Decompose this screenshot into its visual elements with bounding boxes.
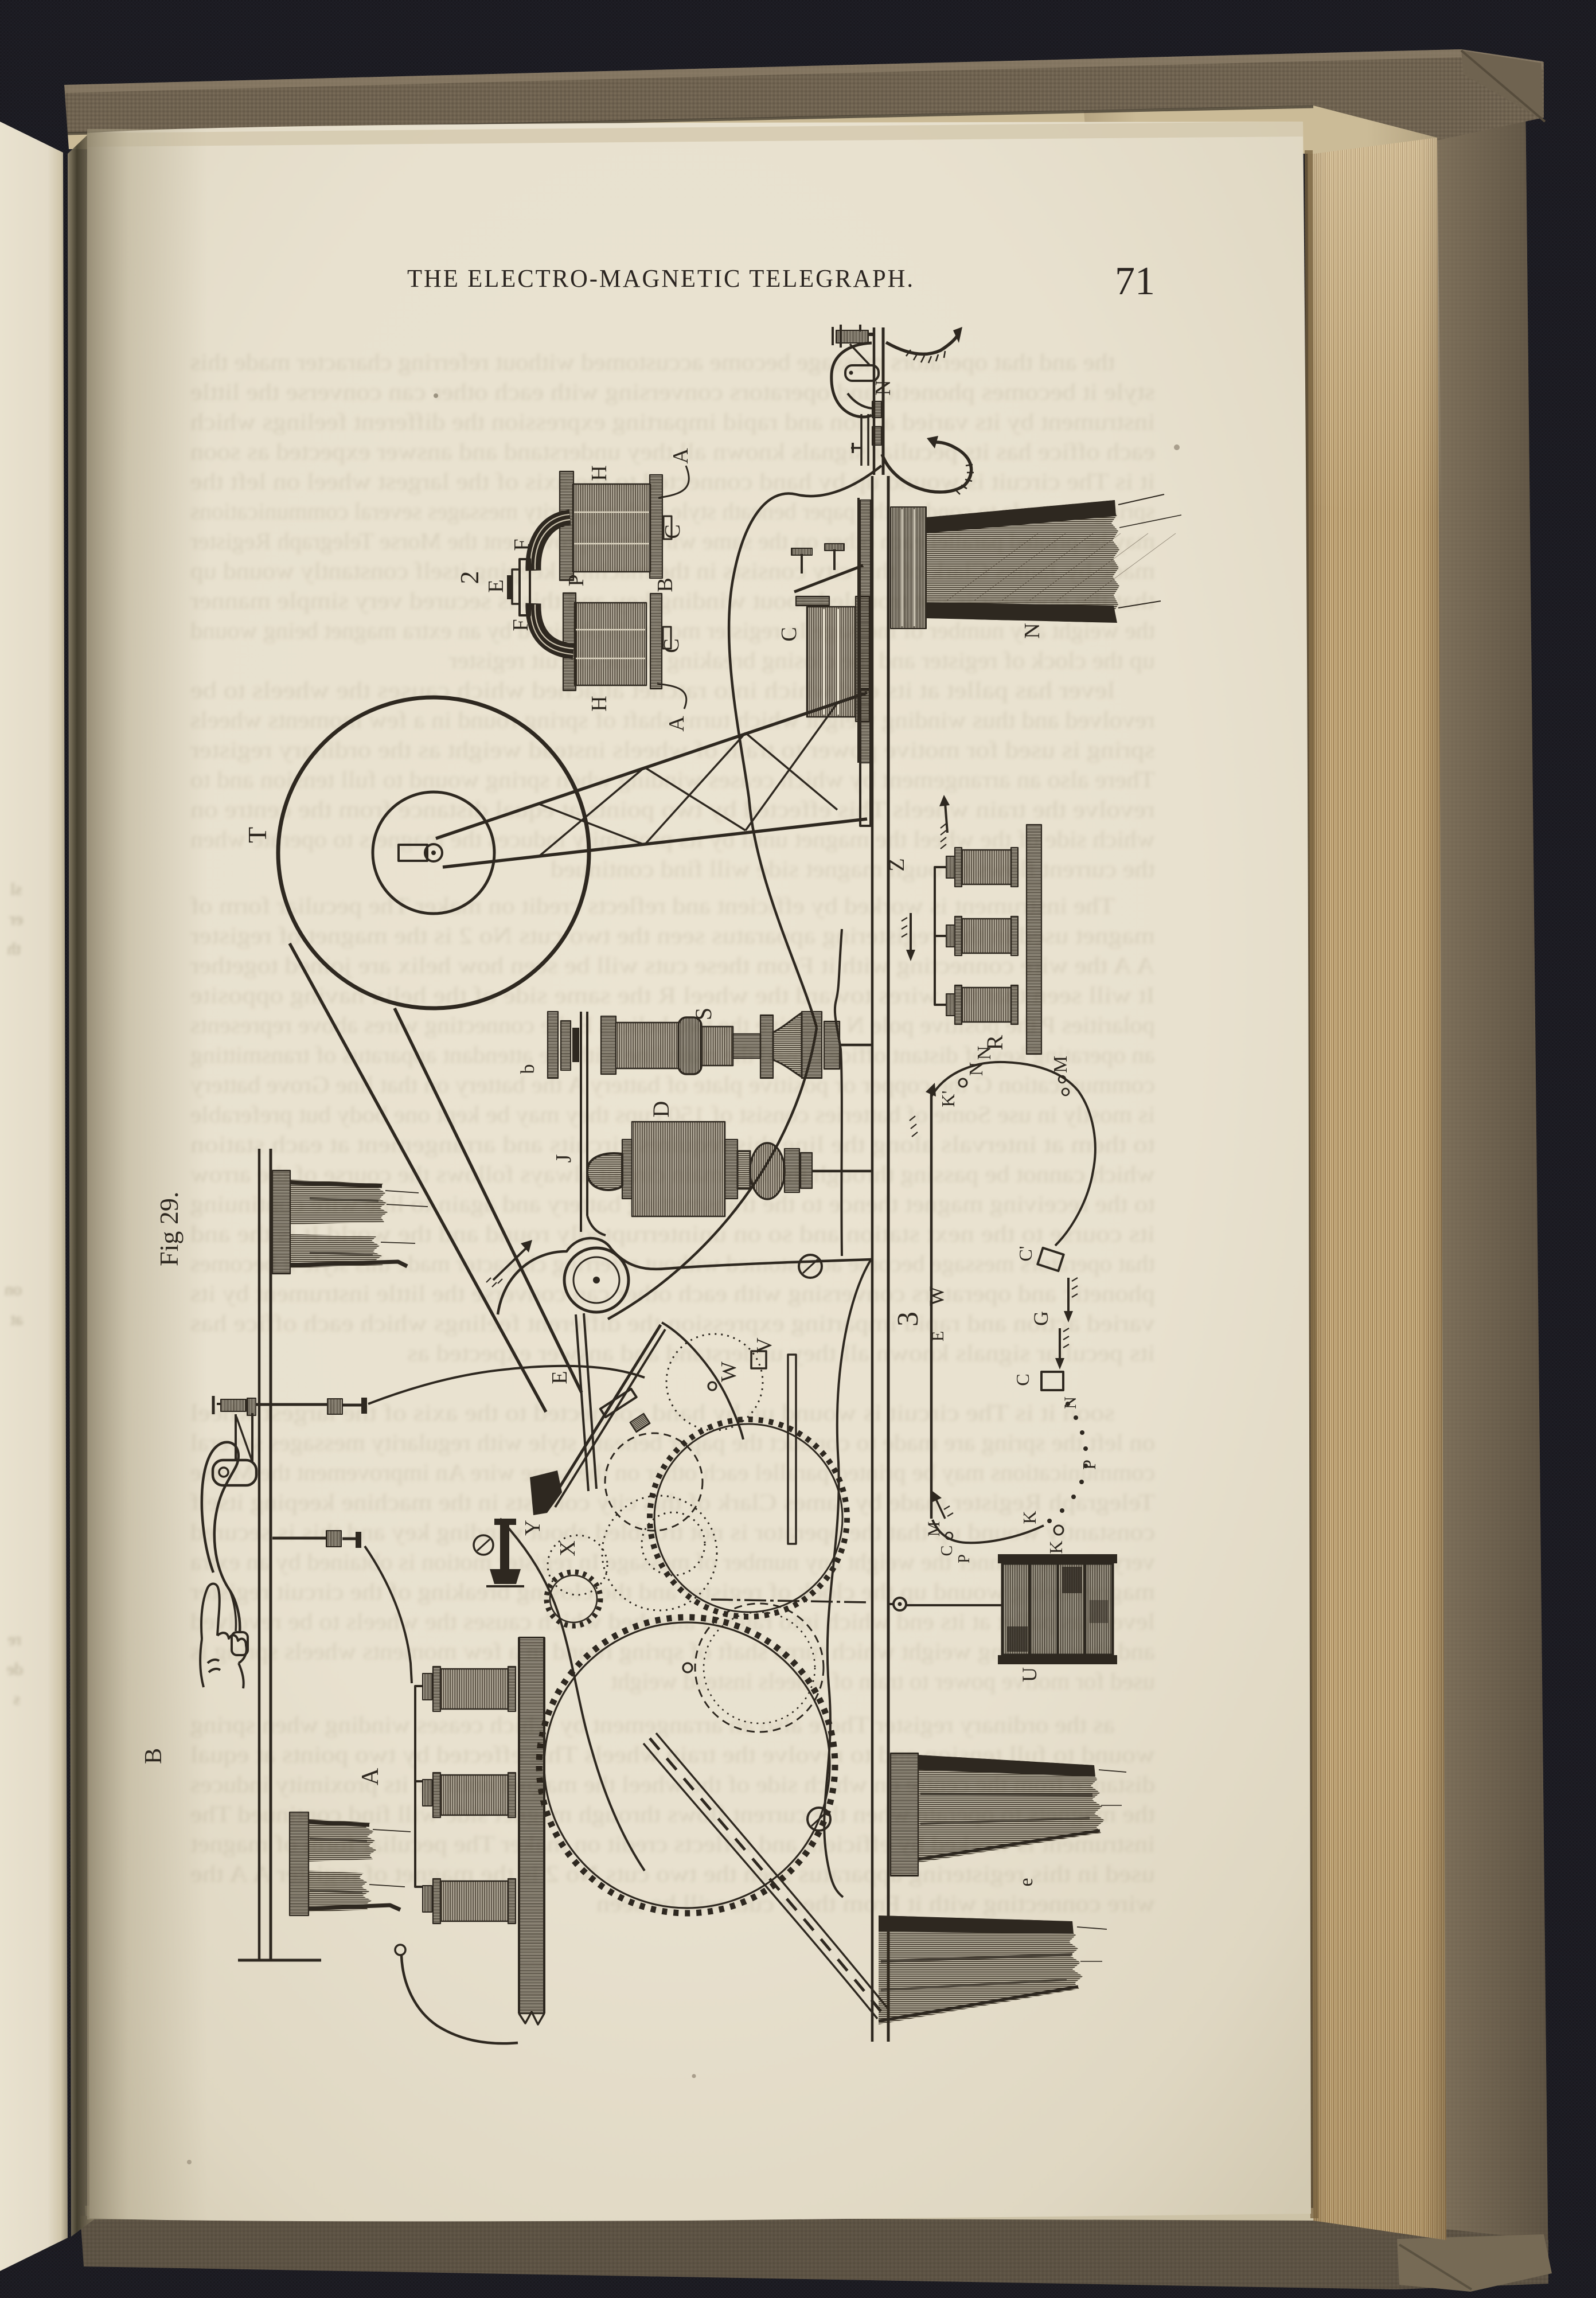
svg-text:sl: sl [10, 880, 22, 899]
svg-text:S: S [690, 1008, 716, 1020]
svg-text:F: F [509, 619, 533, 631]
svg-text:M: M [924, 1521, 943, 1537]
svg-text:phonetic and operators convers: phonetic and operators conversing with e… [190, 1280, 1155, 1306]
svg-text:THE ELECTRO-MAGNETIC TELEGRAPH: THE ELECTRO-MAGNETIC TELEGRAPH. [407, 264, 915, 292]
svg-text:at: at [10, 1310, 23, 1329]
svg-text:E: E [928, 1331, 947, 1341]
svg-text:on: on [5, 1280, 22, 1299]
svg-text:er: er [10, 910, 23, 928]
svg-text:N: N [1061, 1396, 1080, 1409]
svg-text:wire connecting with it From t: wire connecting with it From these cuts … [596, 1890, 1155, 1917]
svg-text:on left the spring are made to: on left the spring are made to conduct t… [190, 1429, 1155, 1456]
svg-text:D: D [648, 1101, 674, 1118]
svg-text:N: N [871, 380, 895, 395]
svg-text:revolve the train wheels This: revolve the train wheels This effected b… [190, 796, 1155, 822]
svg-text:N: N [1020, 623, 1044, 638]
svg-text:which side of the wheel the ma: which side of the wheel the magnet until… [190, 826, 1155, 852]
svg-text:s: s [13, 1690, 20, 1708]
svg-text:A: A [357, 1768, 384, 1785]
svg-text:71: 71 [1115, 259, 1155, 303]
svg-text:C': C' [1015, 1246, 1036, 1261]
svg-text:E: E [548, 1371, 572, 1384]
svg-text:A: A [665, 716, 689, 732]
svg-text:b: b [517, 1064, 538, 1074]
svg-text:re: re [8, 1630, 21, 1649]
svg-text:th: th [7, 939, 21, 958]
svg-text:instrument by its varied actio: instrument by its varied action and rapi… [190, 408, 1155, 435]
svg-text:The instrument is worked by ef: The instrument is worked by efficient an… [190, 892, 1115, 919]
svg-text:C: C [1012, 1374, 1033, 1386]
svg-text:U: U [1018, 1667, 1041, 1682]
svg-text:W: W [925, 1286, 948, 1306]
svg-text:Telegraph Register made by Jam: Telegraph Register made by James Clark o… [190, 1489, 1155, 1515]
svg-text:C: C [938, 1546, 956, 1556]
svg-text:V: V [752, 1337, 776, 1353]
svg-text:F: F [510, 539, 534, 551]
svg-text:P: P [1079, 1460, 1099, 1470]
svg-text:C: C [661, 524, 685, 539]
svg-text:K': K' [938, 1091, 958, 1107]
svg-text:N: N [974, 1046, 995, 1060]
svg-text:There also an arrangement by w: There also an arrangement by which cease… [190, 766, 1155, 793]
svg-text:communication G the copper or: communication G the copper or positive p… [190, 1071, 1155, 1098]
svg-text:X: X [556, 1540, 580, 1556]
svg-text:de: de [7, 1660, 23, 1679]
svg-text:T: T [243, 827, 272, 843]
svg-text:e: e [1016, 1878, 1037, 1886]
svg-text:G: G [1029, 1311, 1052, 1326]
svg-text:P: P [564, 574, 588, 586]
svg-text:M: M [1050, 1056, 1071, 1073]
svg-text:C: C [660, 638, 684, 653]
svg-text:C: C [777, 627, 801, 641]
svg-text:varied action and rapid impart: varied action and rapid imparting expres… [190, 1310, 1155, 1336]
svg-text:as the ordinary register There: as the ordinary register There also an a… [190, 1711, 1115, 1738]
svg-text:A: A [669, 448, 693, 464]
svg-text:style it becomes phonetic and: style it becomes phonetic and operators … [190, 379, 1155, 405]
svg-text:P: P [955, 1554, 973, 1563]
svg-text:Y: Y [521, 1520, 545, 1535]
svg-text:J: J [552, 1154, 576, 1163]
svg-text:Fig 29.: Fig 29. [154, 1192, 184, 1266]
svg-text:H: H [587, 465, 611, 481]
svg-text:K: K [1019, 1511, 1040, 1524]
svg-text:E: E [484, 579, 508, 592]
svg-text:B: B [653, 578, 677, 592]
svg-text:H: H [587, 696, 611, 711]
svg-text:K: K [1045, 1540, 1066, 1554]
svg-text:it is The circuit is wound up: it is The circuit is wound up by hand co… [190, 468, 1155, 494]
svg-text:W: W [717, 1361, 741, 1382]
svg-text:B: B [141, 1748, 167, 1764]
svg-text:2: 2 [455, 571, 484, 584]
svg-text:3: 3 [892, 1312, 924, 1326]
svg-text:the and that operators message: the and that operators message become ac… [190, 349, 1115, 375]
svg-text:Z: Z [885, 858, 909, 871]
svg-text:the current flows through magn: the current flows through magnet side wi… [551, 856, 1155, 882]
svg-text:used for motive power to train: used for motive power to train of wheels… [610, 1668, 1155, 1694]
